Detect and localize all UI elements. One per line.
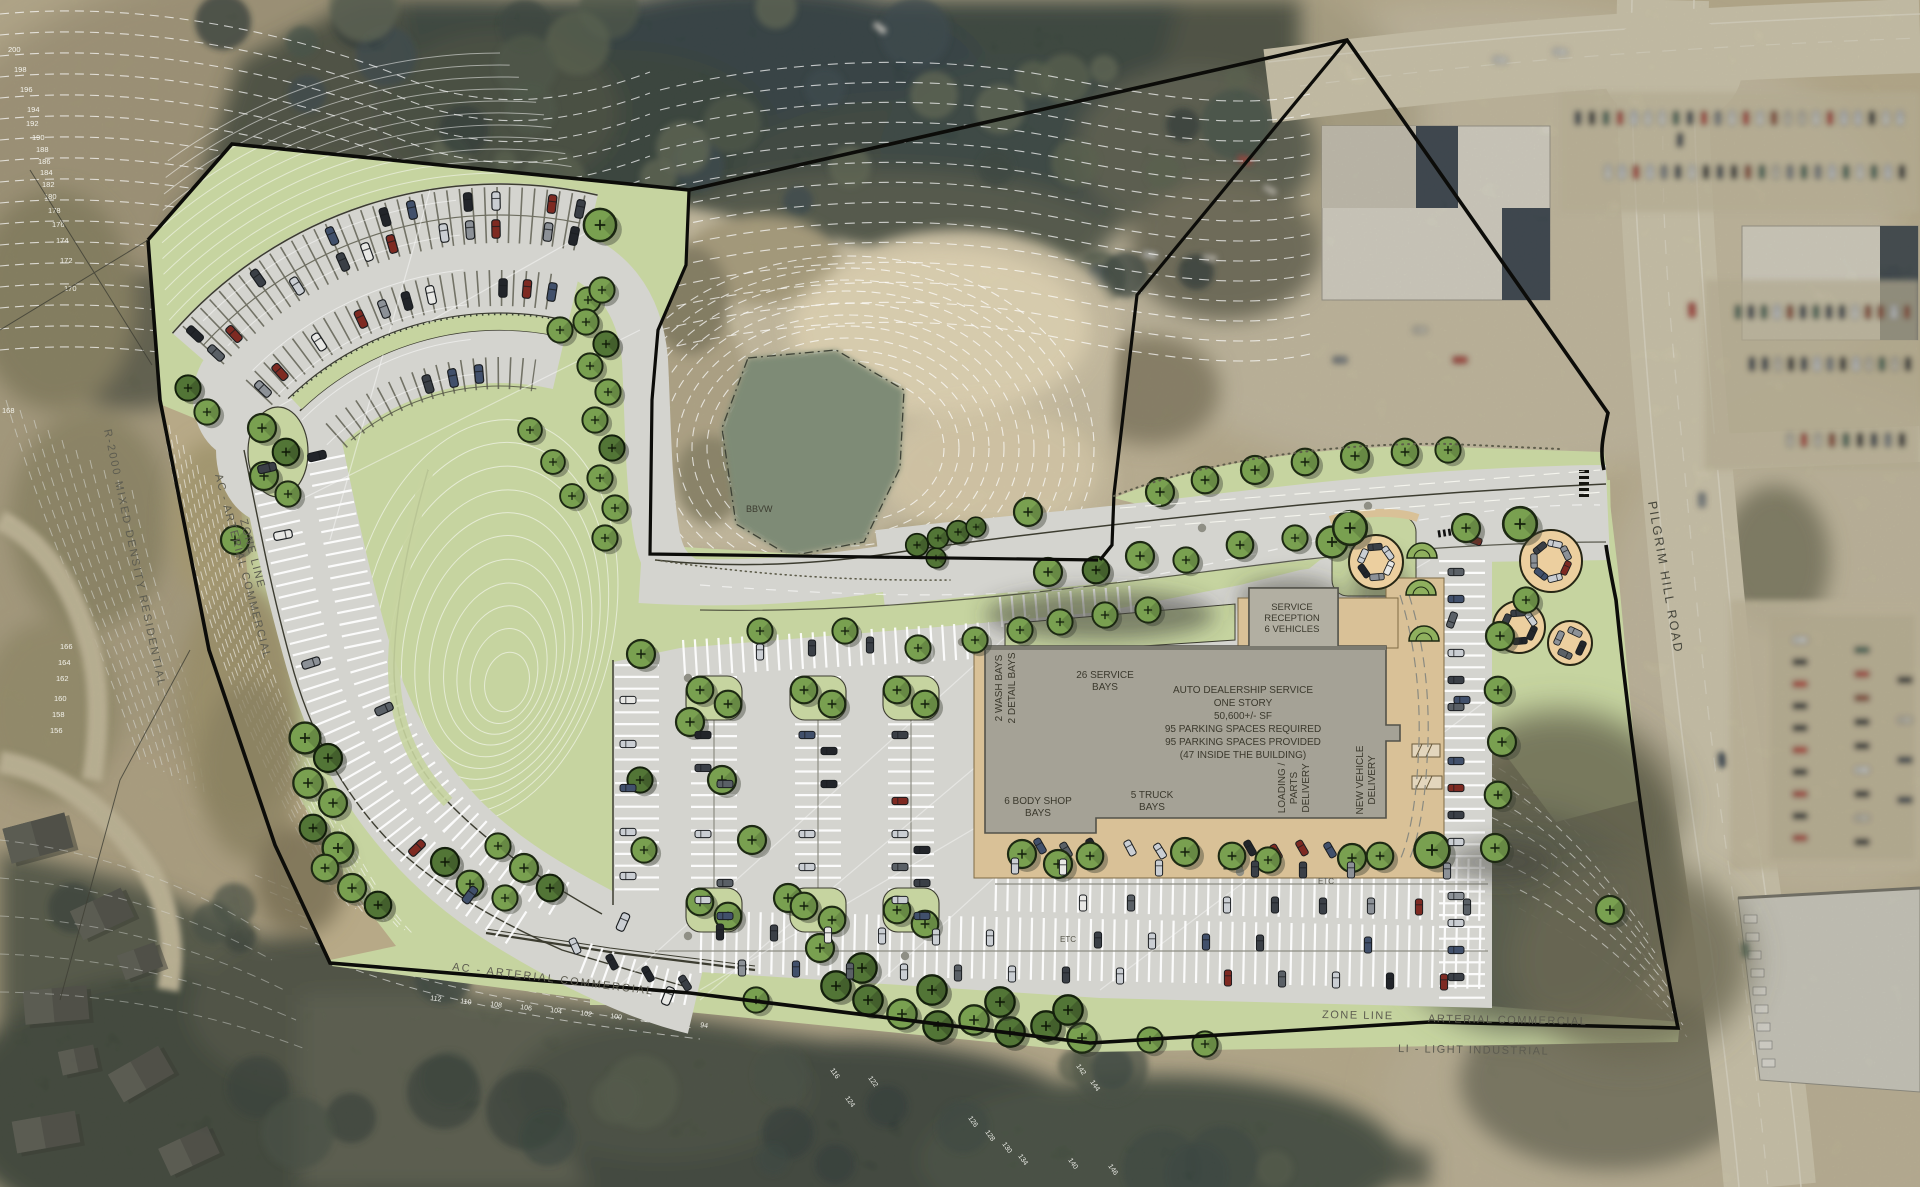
svg-text:194: 194 <box>27 105 40 114</box>
svg-text:6 BODY SHOP: 6 BODY SHOP <box>1004 796 1072 807</box>
svg-text:5 TRUCK: 5 TRUCK <box>1131 790 1174 801</box>
svg-text:LOADING /: LOADING / <box>1277 763 1288 814</box>
svg-text:NEW VEHICLE: NEW VEHICLE <box>1355 745 1366 814</box>
svg-text:95 PARKING SPACES REQUIRED: 95 PARKING SPACES REQUIRED <box>1165 724 1321 735</box>
svg-text:190: 190 <box>32 133 45 142</box>
svg-text:188: 188 <box>36 145 49 154</box>
svg-text:AUTO DEALERSHIP SERVICE: AUTO DEALERSHIP SERVICE <box>1173 685 1313 696</box>
svg-text:BAYS: BAYS <box>1139 802 1165 813</box>
svg-text:50,600+/- SF: 50,600+/- SF <box>1214 711 1272 722</box>
svg-text:BBVW: BBVW <box>746 504 773 514</box>
svg-text:2 WASH BAYS: 2 WASH BAYS <box>994 654 1005 721</box>
svg-text:162: 162 <box>56 674 69 683</box>
svg-text:BAYS: BAYS <box>1092 682 1118 693</box>
svg-text:ETC: ETC <box>1318 877 1334 886</box>
svg-text:172: 172 <box>60 256 73 265</box>
svg-text:174: 174 <box>56 236 69 245</box>
svg-text:95 PARKING SPACES PROVIDED: 95 PARKING SPACES PROVIDED <box>1165 737 1321 748</box>
svg-text:RECEPTION: RECEPTION <box>1264 613 1320 624</box>
svg-text:170: 170 <box>64 284 77 293</box>
svg-text:BAYS: BAYS <box>1025 808 1051 819</box>
svg-text:2 DETAIL BAYS: 2 DETAIL BAYS <box>1007 652 1018 723</box>
svg-text:182: 182 <box>42 180 55 189</box>
svg-text:94: 94 <box>700 1022 709 1030</box>
svg-text:168: 168 <box>2 406 15 415</box>
svg-text:ETC: ETC <box>1060 935 1076 944</box>
svg-text:ZONE LINE: ZONE LINE <box>1322 1009 1394 1022</box>
svg-text:166: 166 <box>60 642 73 651</box>
svg-text:PARTS: PARTS <box>1289 771 1300 804</box>
svg-text:184: 184 <box>40 168 53 177</box>
svg-text:192: 192 <box>26 119 39 128</box>
svg-text:200: 200 <box>8 45 21 54</box>
svg-text:ONE STORY: ONE STORY <box>1214 698 1273 709</box>
svg-text:178: 178 <box>48 206 61 215</box>
svg-text:(47 INSIDE THE BUILDING): (47 INSIDE THE BUILDING) <box>1180 750 1307 761</box>
svg-text:158: 158 <box>52 710 65 719</box>
svg-text:160: 160 <box>54 694 67 703</box>
svg-text:DELIVERY: DELIVERY <box>1367 755 1378 805</box>
svg-text:6 VEHICLES: 6 VEHICLES <box>1265 624 1320 635</box>
svg-text:DELIVERY: DELIVERY <box>1301 763 1312 813</box>
svg-text:SERVICE: SERVICE <box>1271 602 1313 613</box>
svg-text:156: 156 <box>50 726 63 735</box>
svg-text:196: 196 <box>20 85 33 94</box>
svg-text:180: 180 <box>44 192 57 201</box>
svg-text:198: 198 <box>14 65 27 74</box>
svg-text:186: 186 <box>38 157 51 166</box>
svg-text:164: 164 <box>58 658 71 667</box>
svg-text:26 SERVICE: 26 SERVICE <box>1076 670 1134 681</box>
